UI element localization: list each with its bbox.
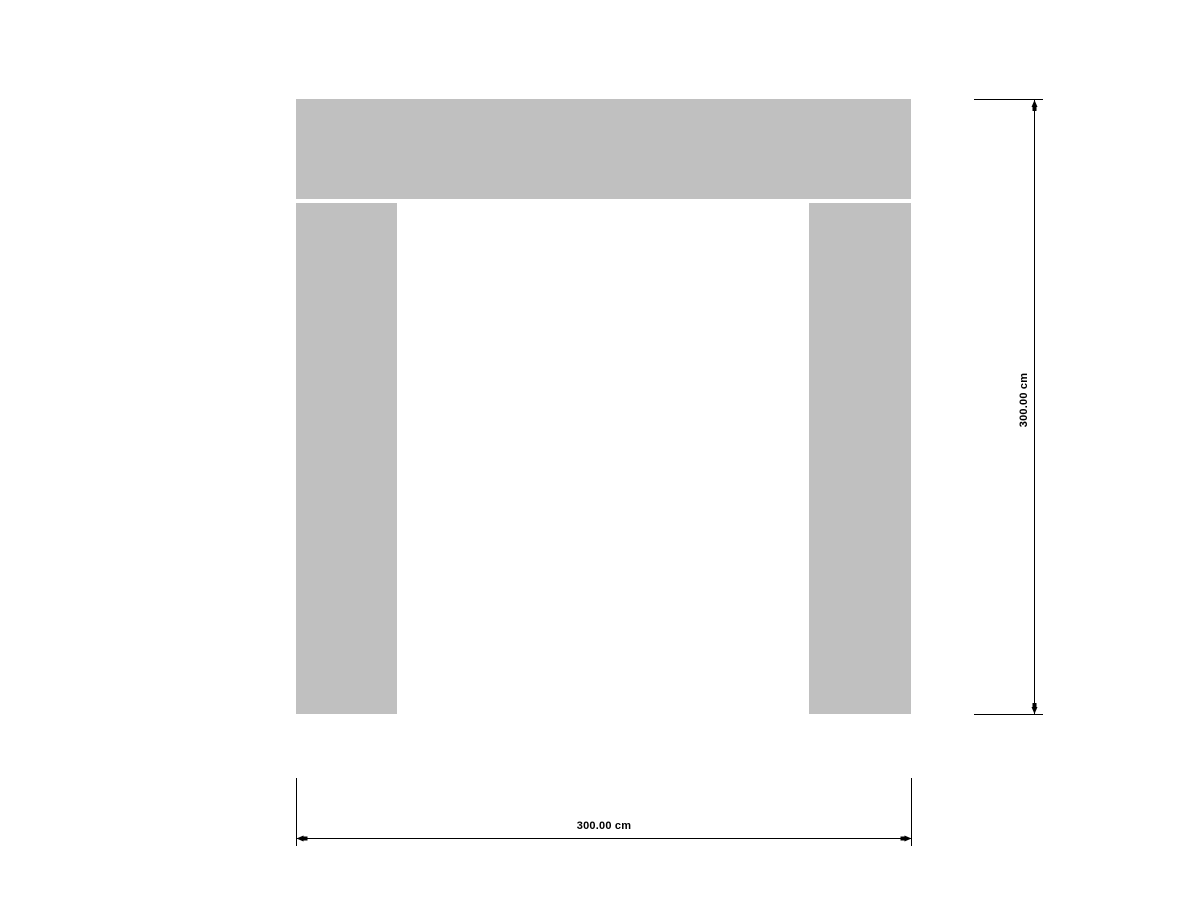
arrow-nub-left bbox=[304, 837, 308, 841]
width-dimension bbox=[297, 778, 912, 846]
arrowhead-up-icon bbox=[1032, 100, 1038, 107]
width-dimension-label: 300.00 cm bbox=[577, 820, 631, 832]
height-dimension bbox=[974, 100, 1043, 715]
height-dimension-label: 300.00 cm bbox=[1018, 373, 1030, 427]
arrowhead-left-icon bbox=[297, 836, 304, 842]
arrowhead-down-icon bbox=[1032, 707, 1038, 714]
arrowhead-right-icon bbox=[905, 836, 912, 842]
arrow-nub-top bbox=[1033, 107, 1037, 111]
dimension-linework bbox=[0, 0, 1200, 900]
drawing-canvas: 300.00 cm 300.00 cm bbox=[0, 0, 1200, 900]
arrow-nub-right bbox=[901, 837, 905, 841]
arrow-nub-bottom bbox=[1033, 703, 1037, 707]
